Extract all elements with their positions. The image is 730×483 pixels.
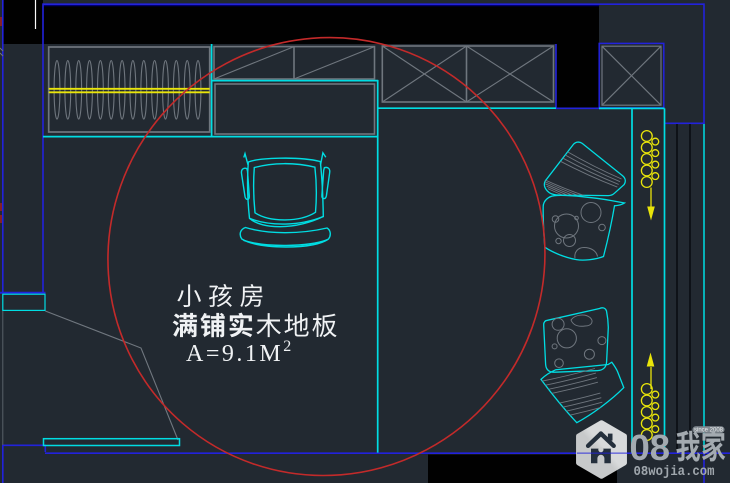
svg-text:since 2008: since 2008 bbox=[694, 428, 724, 434]
svg-text:08: 08 bbox=[630, 427, 671, 468]
svg-text:A=9.1M2: A=9.1M2 bbox=[186, 338, 294, 367]
svg-text:08wojia.com: 08wojia.com bbox=[634, 465, 715, 480]
